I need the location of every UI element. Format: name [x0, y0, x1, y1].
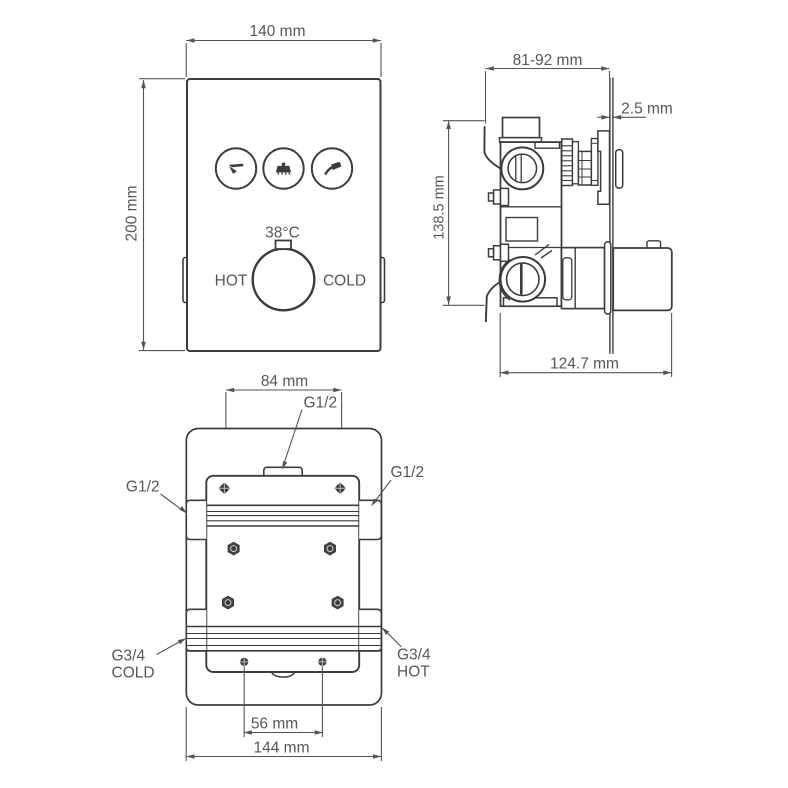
svg-text:2.5 mm: 2.5 mm — [621, 101, 673, 118]
svg-text:G3/4: G3/4 — [112, 648, 146, 665]
svg-text:G3/4: G3/4 — [397, 647, 431, 664]
svg-text:81-92 mm: 81-92 mm — [513, 52, 583, 69]
svg-text:56 mm: 56 mm — [251, 716, 298, 733]
svg-text:138.5 mm: 138.5 mm — [432, 175, 448, 239]
svg-text:144 mm: 144 mm — [254, 740, 310, 757]
svg-text:G1/2: G1/2 — [391, 464, 425, 481]
svg-text:124.7 mm: 124.7 mm — [550, 356, 619, 373]
svg-text:84 mm: 84 mm — [261, 373, 308, 390]
svg-text:HOT: HOT — [215, 273, 248, 290]
svg-text:38°C: 38°C — [265, 225, 300, 242]
svg-text:G1/2: G1/2 — [126, 479, 160, 496]
svg-text:COLD: COLD — [112, 665, 155, 682]
svg-text:COLD: COLD — [323, 273, 366, 290]
svg-text:200 mm: 200 mm — [124, 186, 141, 242]
svg-text:HOT: HOT — [397, 664, 430, 681]
svg-text:G1/2: G1/2 — [304, 395, 338, 412]
svg-text:140 mm: 140 mm — [250, 23, 306, 40]
